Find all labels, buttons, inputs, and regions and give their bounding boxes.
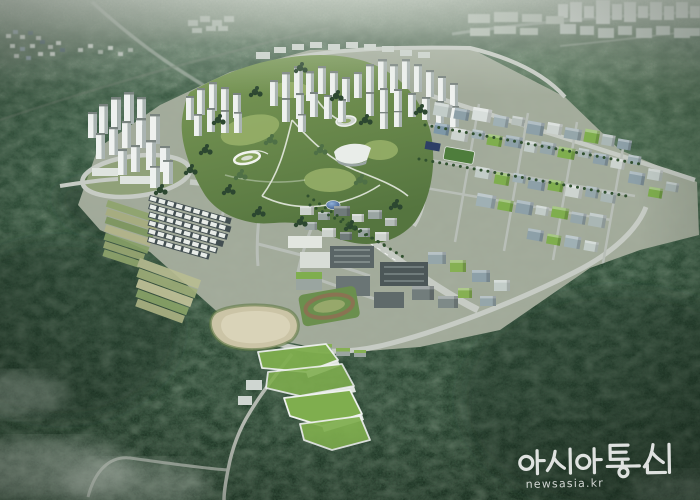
watermark-url: newsasia.kr	[526, 477, 605, 491]
aerial-rendering: newsasia.kr	[0, 0, 700, 500]
vignette	[0, 0, 700, 500]
